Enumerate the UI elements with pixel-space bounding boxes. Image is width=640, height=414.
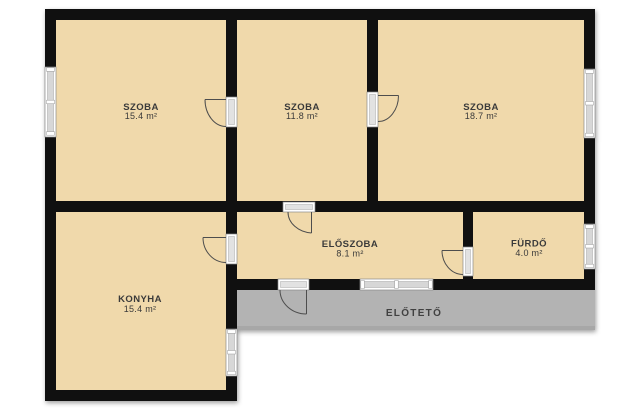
window-furdo: [584, 224, 595, 269]
wall-eloszoba-furdo: [463, 201, 473, 290]
porch-edge-shading: [237, 326, 595, 330]
room-szoba-1-area: 15.4 m²: [125, 111, 158, 121]
room-furdo-area: 4.0 m²: [515, 248, 542, 258]
room-eloszoba-area: 8.1 m²: [336, 249, 363, 259]
floor-plan: SZOBA 15.4 m² SZOBA 11.8 m² SZOBA 18.7 m…: [45, 9, 595, 401]
floor-plan-svg: SZOBA 15.4 m² SZOBA 11.8 m² SZOBA 18.7 m…: [0, 0, 640, 414]
room-szoba-2-area: 11.8 m²: [286, 111, 318, 121]
room-szoba-3-area: 18.7 m²: [465, 111, 498, 121]
wall-middle-horizontal: [45, 201, 595, 212]
wall-kitchen-bottom: [45, 390, 237, 401]
window-szoba-3: [584, 69, 595, 138]
room-konyha-area: 15.4 m²: [124, 304, 157, 314]
window-szoba-1: [45, 67, 56, 137]
porch-name-label: ELŐTETŐ: [386, 306, 442, 319]
window-konyha: [226, 329, 237, 376]
window-eloszoba-porch: [360, 279, 433, 290]
wall-top: [45, 9, 595, 20]
floor-plan-page: SZOBA 15.4 m² SZOBA 11.8 m² SZOBA 18.7 m…: [0, 0, 640, 414]
